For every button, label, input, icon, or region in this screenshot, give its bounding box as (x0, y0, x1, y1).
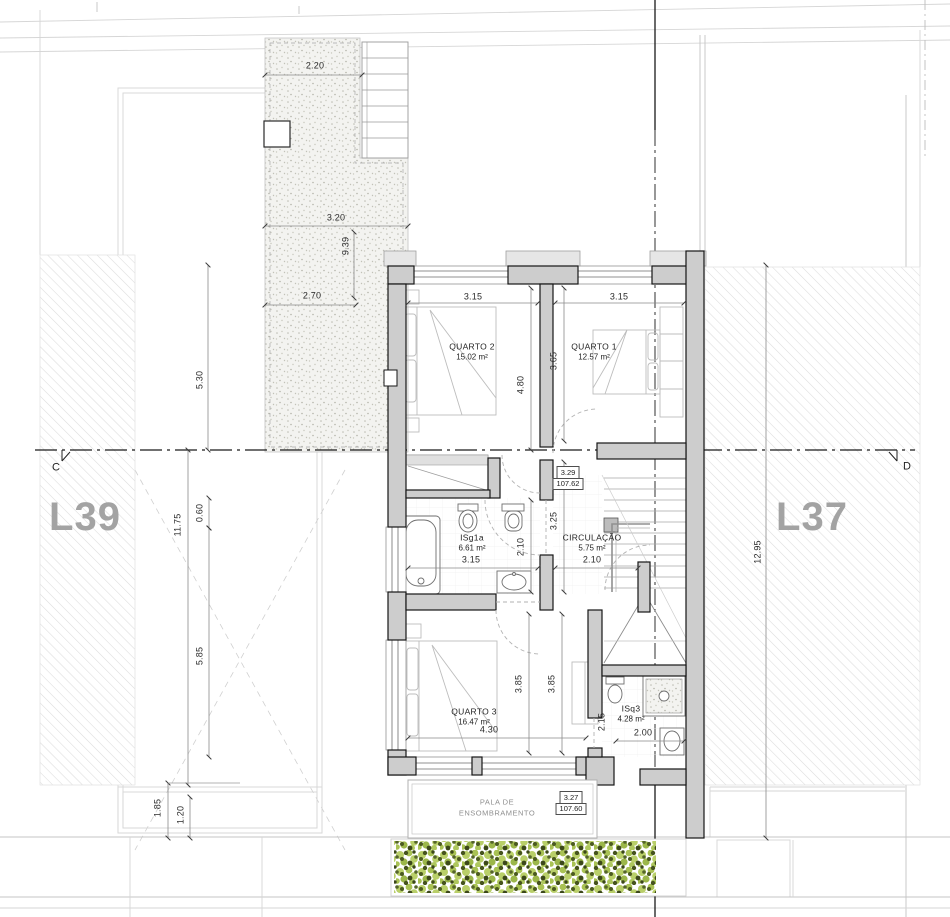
dim-isq3-width: 2.00 (634, 729, 652, 738)
level-marker-lower: 3.27 107.60 (556, 791, 587, 815)
dim-q1-depth: 3.65 (550, 352, 559, 370)
room-label-circulacao: CIRCULAÇÃO 5.75 m² (563, 533, 622, 554)
dim-terrace-mid: 3.20 (327, 214, 345, 223)
hedge (391, 839, 686, 896)
section-marker-c: C (52, 463, 60, 474)
dim-pala-left: 1.85 (154, 799, 163, 817)
room-area-quarto1: 12.57 m² (571, 352, 617, 362)
dim-q1-width: 3.15 (610, 293, 628, 302)
dim-circ-width: 2.10 (583, 556, 601, 565)
pala-line2: ENSOMBRAMENTO (459, 808, 535, 819)
level-elevation-lower: 107.60 (556, 803, 587, 816)
room-name-quarto2: QUARTO 2 (449, 342, 495, 353)
lot-label-right: L37 (776, 497, 848, 537)
room-name-isq3: ISq3 (617, 704, 644, 715)
room-area-quarto2: 15.02 m² (449, 352, 495, 362)
pala-line1: PALA DE (459, 798, 535, 809)
dim-pala-inner: 1.20 (177, 806, 186, 824)
dim-q2-depth: 4.80 (517, 376, 526, 394)
door-quarto1 (553, 409, 597, 453)
level-marker-upper: 3.29 107.62 (553, 466, 584, 490)
furniture-quarto3 (405, 624, 598, 751)
room-label-quarto2: QUARTO 2 15.02 m² (449, 342, 495, 363)
lot-label-left: L39 (49, 497, 121, 537)
room-name-quarto1: QUARTO 1 (571, 342, 617, 353)
door-quarto3 (496, 610, 540, 654)
wall-niche (384, 370, 397, 386)
wardrobe-quarto2-nook (406, 455, 488, 492)
dim-q3-depth-left: 3.85 (515, 675, 524, 693)
room-label-isq3: ISq3 4.28 m² (617, 704, 644, 725)
dim-site-left-upper: 5.30 (196, 371, 205, 389)
room-label-isg1a: ISg1a 6.61 m² (458, 533, 485, 554)
toilet (606, 677, 624, 684)
room-area-circulacao: 5.75 m² (563, 543, 622, 553)
dim-q3-width: 4.30 (480, 726, 498, 735)
dim-q3-depth-right: 3.85 (548, 675, 557, 693)
room-area-isg1a: 6.61 m² (458, 543, 485, 553)
floor-plan-canvas: L39 L37 C D QUARTO 2 15.02 m² QUARTO 1 1… (0, 0, 950, 917)
dim-bath-width: 3.15 (462, 556, 480, 565)
section-marker-d: D (903, 462, 911, 473)
dim-terrace-lower: 2.70 (303, 292, 321, 301)
pala-label: PALA DE ENSOMBRAMENTO (459, 798, 535, 819)
chimney (264, 121, 290, 147)
dim-site-left-lower: 5.85 (196, 647, 205, 665)
room-name-isg1a: ISg1a (458, 533, 485, 544)
dim-site-left-offset: 0.60 (196, 504, 205, 522)
dim-circ-depth: 3.25 (550, 512, 559, 530)
toilet (502, 504, 524, 511)
room-name-quarto3: QUARTO 3 (451, 707, 497, 718)
roof-terrace (264, 38, 408, 452)
level-elevation-upper: 107.62 (553, 478, 584, 491)
dim-q2-width: 3.15 (464, 293, 482, 302)
dim-isq3-depth: 2.15 (598, 713, 607, 731)
dim-site-right-total: 12.95 (754, 540, 763, 564)
roof-access-ladder (362, 42, 408, 158)
dim-bath-depth: 2.10 (517, 538, 526, 556)
room-name-circulacao: CIRCULAÇÃO (563, 533, 622, 544)
room-label-quarto1: QUARTO 1 12.57 m² (571, 342, 617, 363)
dim-terrace-total: 9.39 (342, 237, 351, 255)
dim-terrace-width: 2.20 (306, 62, 324, 71)
wardrobe-quarto1 (660, 307, 683, 417)
nightstand (405, 624, 421, 638)
room-area-isq3: 4.28 m² (617, 714, 644, 724)
plan-drawing (0, 0, 950, 917)
dim-site-left-total: 11.75 (174, 514, 183, 537)
door-quarto2 (502, 455, 540, 493)
